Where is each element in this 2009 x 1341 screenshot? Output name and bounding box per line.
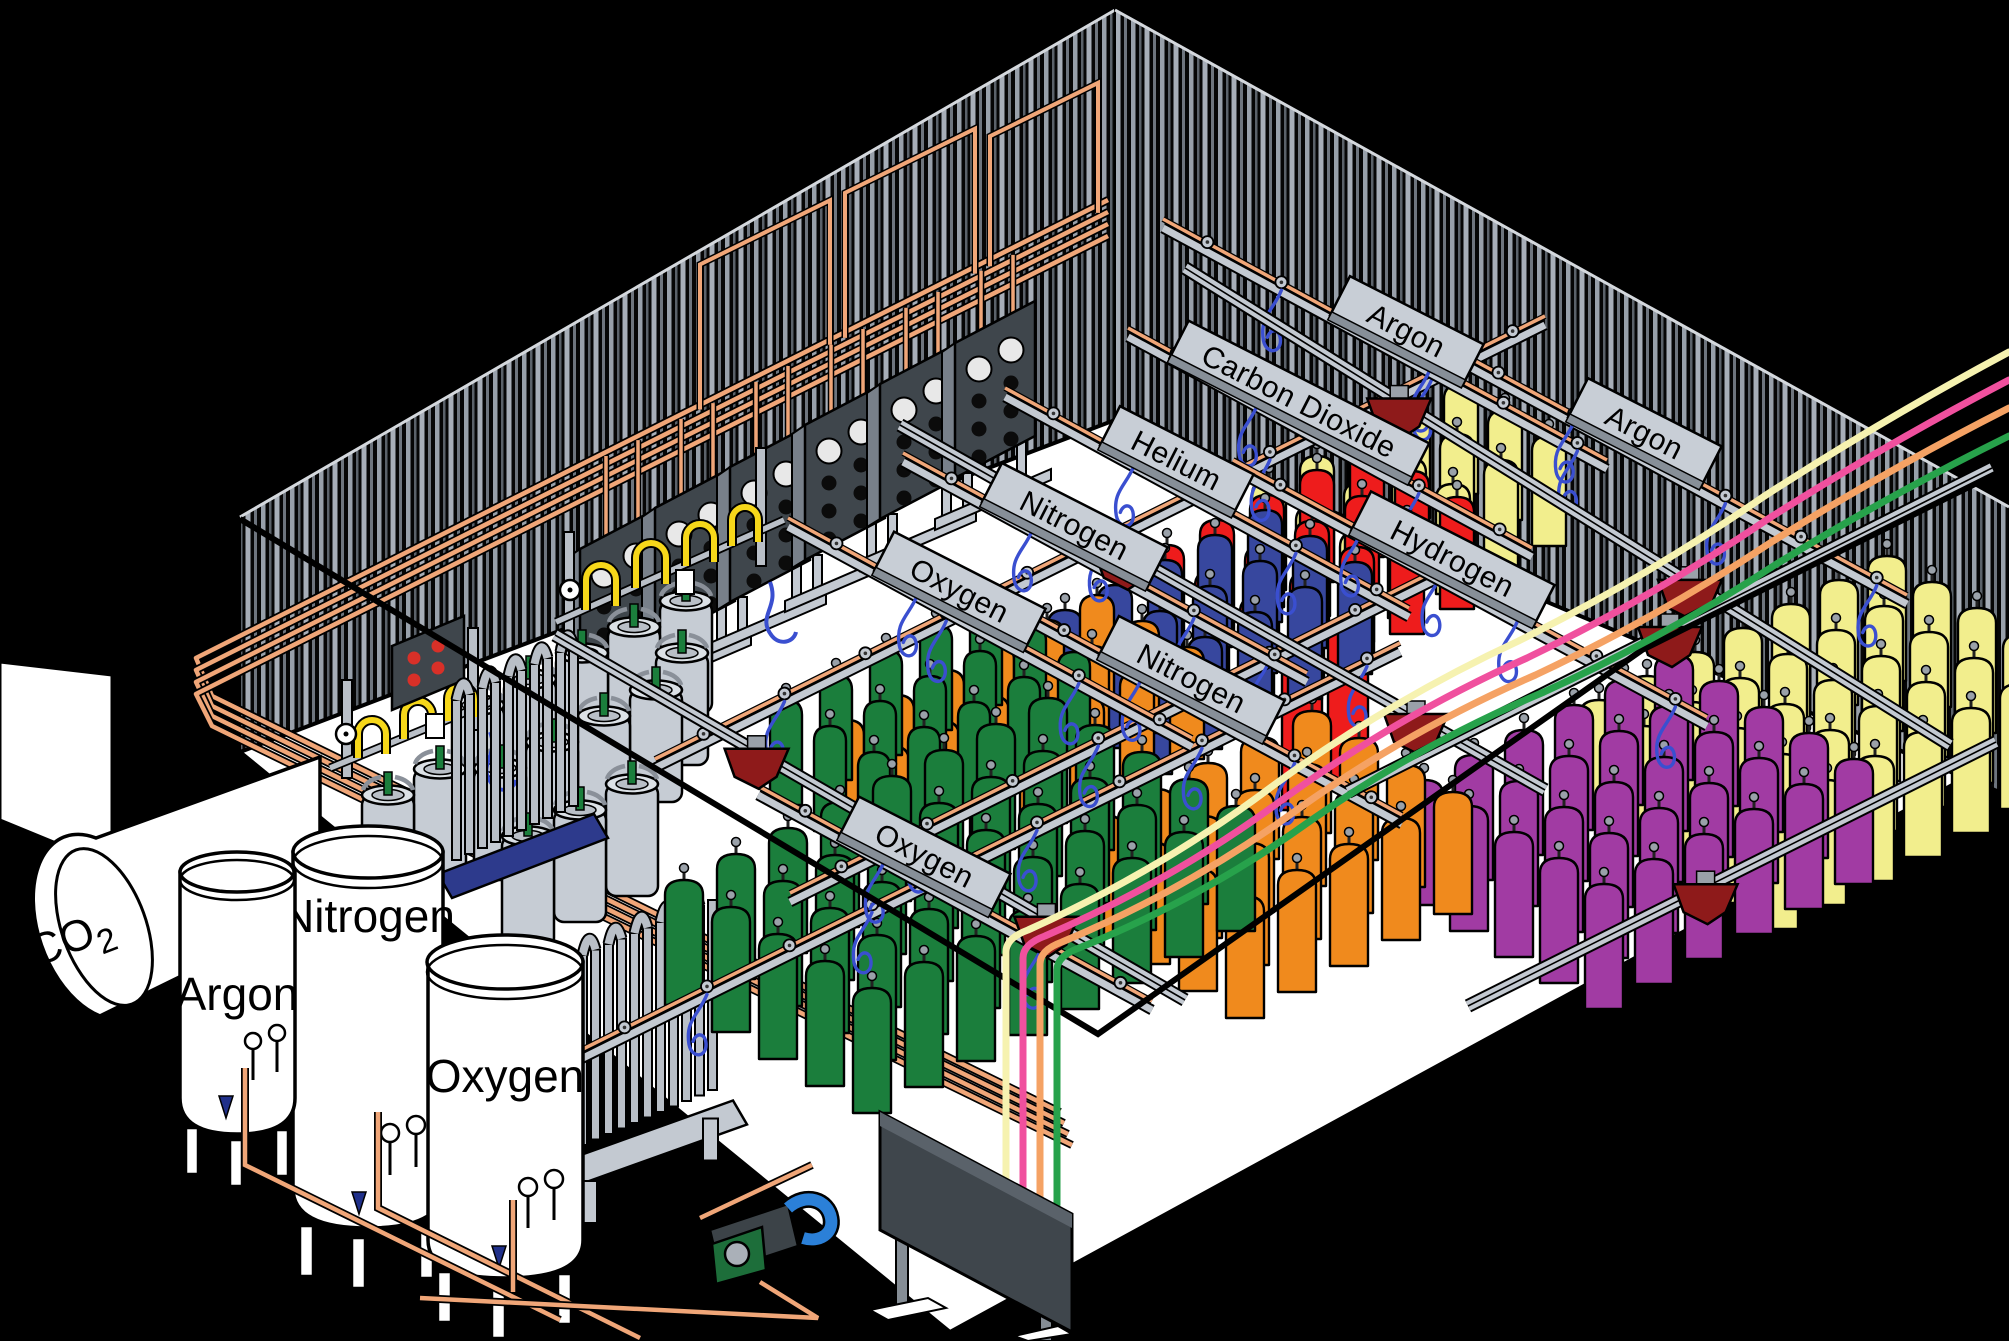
cylinder-valve (1928, 566, 1937, 575)
vaporizer-tube (556, 652, 565, 812)
cylinder-valve (1922, 666, 1931, 675)
cylinder-valve (1301, 571, 1310, 580)
panel-port (972, 422, 987, 437)
cylinder-valve (940, 734, 949, 743)
pump-pulley (725, 1242, 749, 1266)
tank-leg (186, 1128, 198, 1174)
cylinder-valve (992, 708, 1001, 717)
cylinder-valve (1736, 662, 1745, 671)
vaporizer-tube (491, 682, 500, 842)
panel-port (822, 476, 837, 491)
tank-oxygen: Oxygen (426, 935, 585, 1338)
cylinder-valve (1039, 735, 1048, 744)
cylinder-valve (1453, 418, 1462, 427)
cylinder-valve (1303, 748, 1312, 757)
panel-port (822, 504, 837, 519)
cylinder-valve (1781, 688, 1790, 697)
cylinder-valve (987, 761, 996, 770)
cylinder-valve (1715, 665, 1724, 674)
cylinder-valve (920, 711, 929, 720)
cylinder-valve (1850, 743, 1859, 752)
cylinder-valve (1034, 788, 1043, 797)
cylinder-valve (1497, 444, 1506, 453)
cylinder-valve (1358, 480, 1367, 489)
cylinder-valve (888, 760, 897, 769)
gas-cylinder-green (806, 961, 844, 1086)
tank-label-nitrogen: Nitrogen (281, 890, 455, 942)
cylinder-valve (1565, 740, 1574, 749)
tank-leg (230, 1140, 242, 1186)
cylinder-valve (1883, 540, 1892, 549)
gas-cylinder-yellow (1952, 708, 1990, 833)
cylinder-valve (1705, 767, 1714, 776)
cylinder-valve (1826, 714, 1835, 723)
cylinder-valve (870, 736, 879, 745)
cylinder-valve (1970, 642, 1979, 651)
vaporizer-tube (530, 664, 539, 824)
vaporizer-tube (543, 658, 552, 818)
tank-label-argon: Argon (176, 968, 299, 1020)
cylinder-valve (1605, 817, 1614, 826)
vaporizer-leg (703, 1119, 718, 1161)
cylinder-valve (1138, 605, 1147, 614)
cylinder-valve (821, 945, 830, 954)
indicator-light (408, 674, 421, 687)
panel-side (942, 343, 955, 486)
cylinder-valve (1306, 520, 1315, 529)
cylinder-valve (920, 946, 929, 955)
cylinder-valve (1610, 766, 1619, 775)
cylinder-valve (1832, 614, 1841, 623)
cylinder-valve (1805, 717, 1814, 726)
cylinder-valve (1800, 768, 1809, 777)
panel-gauge (892, 398, 917, 423)
cylinder-valve (1206, 570, 1215, 579)
valve-fitting (245, 1033, 261, 1049)
scene-canvas: Oxygen Nitrogen Oxygen Nitrogen Helium C… (0, 0, 2009, 1341)
vaporizer-tube (465, 694, 474, 854)
cylinder-valve (732, 838, 741, 847)
vaporizer-tube (452, 700, 461, 860)
cylinder-valve (1615, 715, 1624, 724)
cylinder-valve (1510, 816, 1519, 825)
cylinder-valve (1973, 592, 1982, 601)
cylinder-valve (1061, 594, 1070, 603)
cylinder-valve (727, 891, 736, 900)
cylinder-valve (1091, 709, 1100, 718)
indicator-light (408, 652, 421, 665)
gas-cylinder-orange (1382, 818, 1420, 940)
cylinder-valve (1251, 596, 1260, 605)
tank-body (428, 962, 583, 1278)
cylinder-valve (970, 686, 979, 695)
indicator-light (432, 662, 445, 675)
cylinder-valve (1877, 640, 1886, 649)
cylinder-valve (1345, 828, 1354, 837)
dewar-valve (436, 746, 444, 769)
tank-leg (352, 1238, 365, 1288)
junction-box (676, 570, 694, 594)
tank-leg (276, 1130, 288, 1176)
tank-rim (180, 852, 294, 892)
vaporizer-tube (504, 676, 513, 836)
cylinder-valve (779, 865, 788, 874)
cylinder-valve (1293, 854, 1302, 863)
cylinder-valve (1760, 691, 1769, 700)
valve-fitting (519, 1178, 537, 1196)
cylinder-valve (1700, 818, 1709, 827)
gas-cylinder-orange (1434, 792, 1472, 914)
cylinder-valve (1211, 519, 1220, 528)
valve-fitting (381, 1124, 399, 1142)
gas-cylinder-purple (1495, 832, 1533, 957)
cylinder-valve (1076, 868, 1085, 877)
cylinder-valve (1397, 802, 1406, 811)
gas-cylinder-orange (1330, 844, 1368, 966)
cylinder-valve (1044, 682, 1053, 691)
gas-cylinder-yellow (1904, 732, 1942, 857)
valve-fitting (269, 1025, 285, 1041)
cylinder-valve (1787, 588, 1796, 597)
panel-port (747, 574, 762, 589)
cylinder-valve (1643, 660, 1652, 669)
cylinder-valve (1088, 630, 1097, 639)
cylinder-valve (1710, 716, 1719, 725)
cylinder-valve (1967, 692, 1976, 701)
gas-cylinder-green (665, 880, 703, 1005)
cylinder-valve (774, 918, 783, 927)
cylinder-valve (1560, 791, 1569, 800)
tank-rim (293, 826, 443, 878)
cylinder-valve (1251, 774, 1260, 783)
cylinder-valve (868, 972, 877, 981)
panel-gauge (967, 357, 992, 382)
cylinder-valve (1655, 792, 1664, 801)
cylinder-valve (1750, 793, 1759, 802)
cylinder-valve (1925, 616, 1934, 625)
vaporizer-tube (517, 670, 526, 830)
panel-side (867, 384, 880, 527)
cylinder-valve (826, 710, 835, 719)
tank-rim (427, 935, 583, 989)
dewar-valve (678, 630, 686, 653)
dewar-valve (600, 693, 608, 716)
vaporizer-tube (478, 688, 487, 848)
dewar-body (606, 784, 658, 896)
cylinder-valve (1256, 545, 1265, 554)
cylinder-valve (1520, 714, 1529, 723)
cylinder-valve (826, 892, 835, 901)
dewar-valve (628, 761, 636, 784)
gas-cylinder-green (905, 962, 943, 1087)
gas-cylinder-green (853, 988, 891, 1113)
gas-plant-illustration: Oxygen Nitrogen Oxygen Nitrogen Helium C… (0, 0, 2009, 1341)
dewar-valve (384, 772, 392, 795)
manifold-post (756, 448, 766, 566)
cylinder-valve (680, 864, 689, 873)
cylinder-valve (1755, 742, 1764, 751)
cylinder-valve (1453, 481, 1462, 490)
cylinder-valve (1449, 468, 1458, 477)
cylinder-valve (935, 787, 944, 796)
gas-cylinder-yellow (2000, 684, 2009, 809)
tank-leg (300, 1226, 313, 1276)
panel-gauge (817, 439, 842, 464)
cylinder-valve (1163, 529, 1172, 538)
valve-fitting (407, 1116, 425, 1134)
cylinder-valve (1128, 842, 1137, 851)
cylinder-valve (1313, 454, 1322, 463)
cylinder-valve (1555, 842, 1564, 851)
cylinder-valve (982, 814, 991, 823)
vaporizer-tube (569, 646, 578, 806)
panel-port (1004, 432, 1019, 447)
cylinder-valve (1600, 868, 1609, 877)
cylinder-valve (1650, 843, 1659, 852)
panel-side (792, 425, 805, 568)
cylinder-valve (1180, 816, 1189, 825)
panel-port (972, 394, 987, 409)
tank-label-oxygen: Oxygen (426, 1050, 585, 1102)
valve-fitting (545, 1170, 563, 1188)
panel-gauge (999, 338, 1024, 363)
junction-box (426, 714, 444, 738)
dewar-valve (630, 604, 638, 627)
cylinder-valve (876, 685, 885, 694)
dewar-cylinder (606, 761, 658, 896)
cylinder-valve (1871, 740, 1880, 749)
gas-cylinder-orange (1278, 870, 1316, 992)
cylinder-valve (1232, 790, 1241, 799)
panel-port (897, 491, 912, 506)
